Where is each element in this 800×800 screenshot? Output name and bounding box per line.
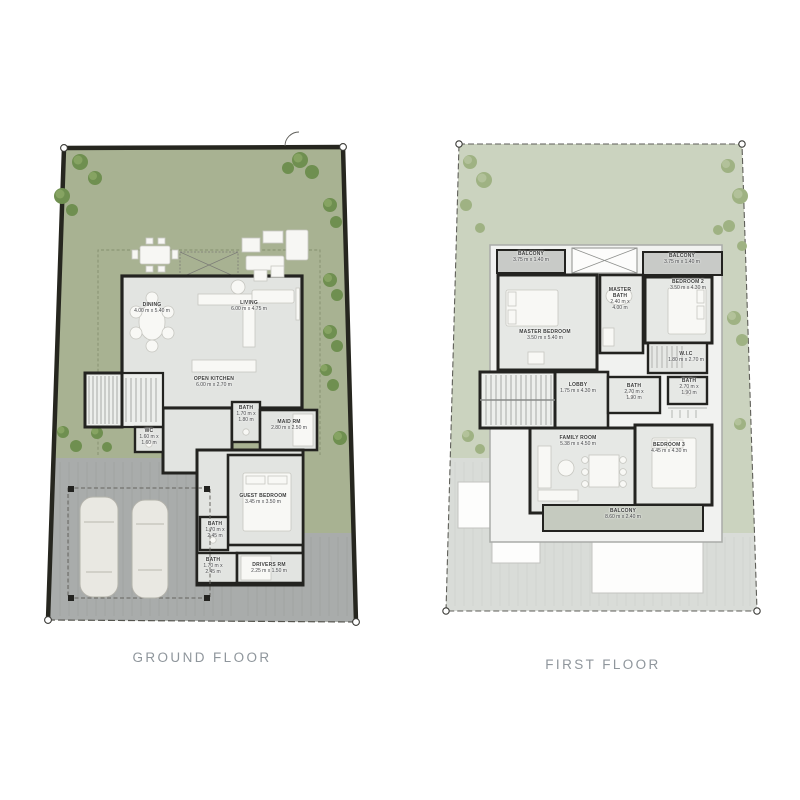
outdoor-table-icon	[140, 246, 170, 264]
toilet-icon	[627, 392, 633, 398]
car-icon	[80, 497, 118, 597]
room-bath1	[232, 402, 260, 442]
maid-bed-icon	[293, 414, 313, 446]
sofa-icon	[538, 446, 551, 488]
room-lobby	[555, 372, 608, 428]
coffee-table-icon	[231, 280, 245, 294]
balconies-top	[497, 248, 722, 275]
kitchen-counter-icon	[198, 294, 256, 305]
room-bath-center	[608, 377, 660, 413]
toilet-icon	[146, 441, 152, 447]
table-icon	[589, 455, 619, 487]
room-bath3	[197, 553, 237, 583]
room-bath2	[200, 517, 228, 550]
outdoor-sofa-icon	[286, 230, 308, 260]
balcony-right	[643, 252, 722, 275]
toilet-icon	[243, 429, 249, 435]
dining-table-icon	[139, 304, 165, 340]
toilet-icon	[685, 389, 691, 395]
balcony-left	[497, 250, 565, 273]
kitchen-island-icon	[192, 360, 256, 372]
plans-drawing	[0, 0, 800, 800]
stairs-inner	[122, 373, 163, 427]
balcony-bottom	[543, 505, 703, 531]
car-icon	[132, 500, 168, 598]
vanity-icon	[603, 328, 614, 346]
room-wc	[135, 427, 163, 452]
bathtub-icon	[606, 287, 632, 305]
drivers-bed-icon	[241, 556, 271, 580]
sofa-icon	[252, 290, 294, 303]
toilet-icon	[210, 537, 216, 543]
ground-floor-plot	[45, 132, 360, 625]
floor-plan-sheet: DINING 4.00 m x 5.40 m LIVING 6.00 m x 4…	[0, 0, 800, 800]
first-floor-plot	[443, 141, 760, 614]
stairs-block	[85, 373, 122, 427]
coffee-table-icon	[558, 460, 574, 476]
gate-swing-arc	[285, 132, 299, 146]
